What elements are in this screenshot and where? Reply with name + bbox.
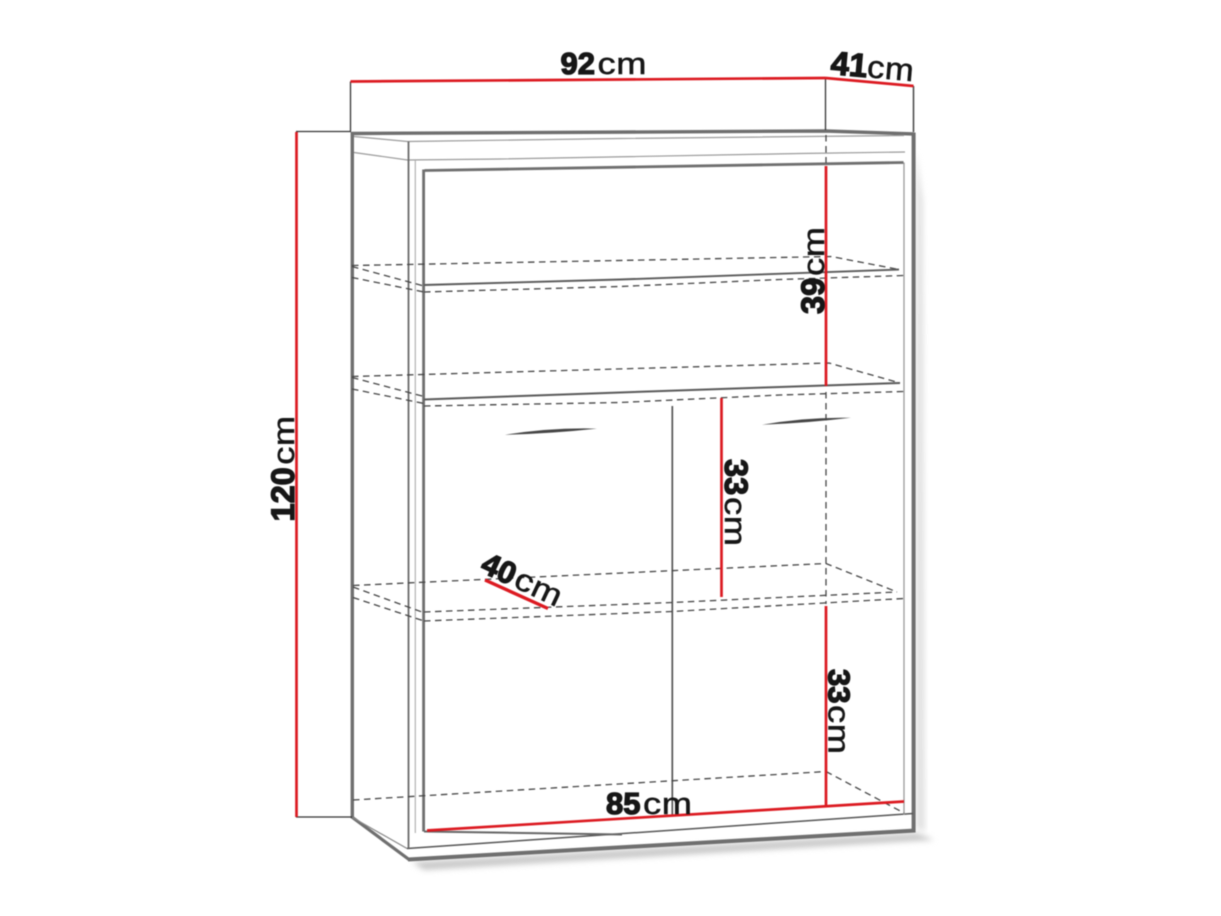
svg-text:41: 41	[829, 44, 869, 84]
svg-text:120: 120	[265, 467, 301, 521]
svg-text:cm: cm	[796, 226, 831, 276]
svg-text:cm: cm	[266, 415, 301, 465]
svg-text:cm: cm	[718, 497, 753, 547]
svg-text:cm: cm	[821, 705, 856, 755]
svg-text:cm: cm	[866, 50, 916, 89]
svg-text:cm: cm	[598, 46, 648, 81]
svg-text:92: 92	[561, 46, 595, 81]
svg-text:33: 33	[718, 459, 754, 495]
svg-text:85: 85	[606, 786, 640, 821]
svg-text:33: 33	[822, 669, 857, 703]
svg-text:39: 39	[795, 278, 831, 314]
svg-text:cm: cm	[509, 561, 569, 614]
svg-text:cm: cm	[643, 786, 693, 821]
